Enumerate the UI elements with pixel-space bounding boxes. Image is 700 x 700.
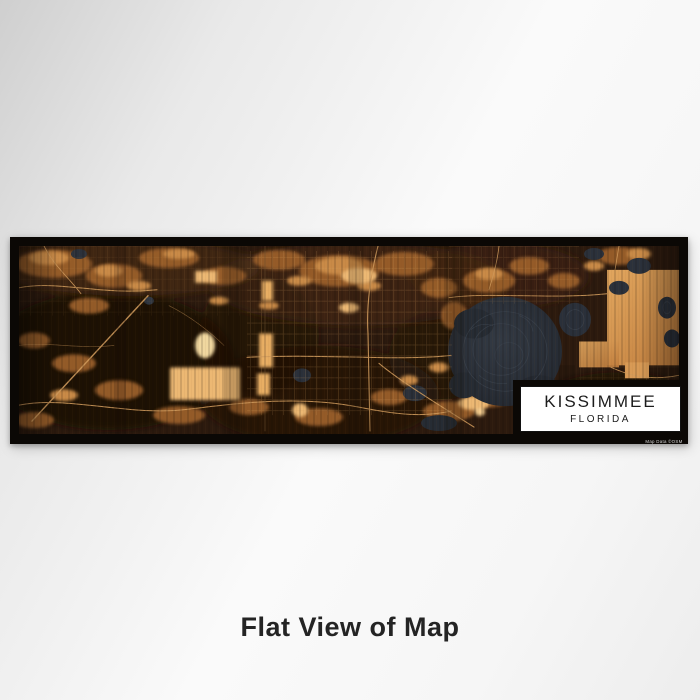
map-state-name: FLORIDA bbox=[525, 414, 676, 425]
map-print: KISSIMMEE FLORIDA Map Data ©OSM bbox=[10, 237, 688, 444]
map-data-credit: Map Data ©OSM bbox=[646, 439, 683, 444]
view-caption: Flat View of Map bbox=[0, 612, 700, 643]
map-title-label: KISSIMMEE FLORIDA bbox=[513, 380, 688, 444]
map-city-name: KISSIMMEE bbox=[525, 392, 676, 412]
product-photo-background: KISSIMMEE FLORIDA Map Data ©OSM Flat Vie… bbox=[0, 0, 700, 700]
map-title-card: KISSIMMEE FLORIDA bbox=[520, 386, 681, 432]
